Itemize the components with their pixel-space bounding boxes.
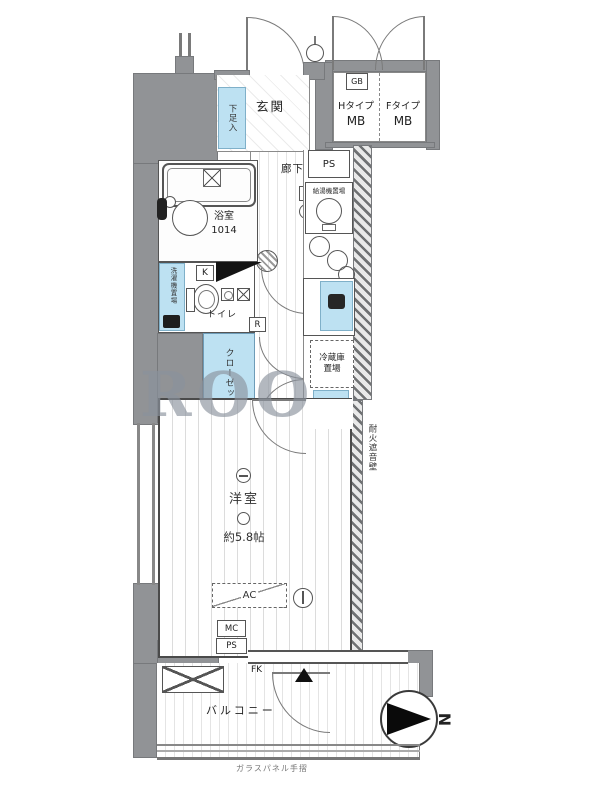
wall-hatched-right-upper bbox=[353, 145, 372, 400]
bath-counter-icon bbox=[157, 198, 167, 220]
ps-top-box: PS bbox=[308, 150, 350, 178]
mb-right-label: MB bbox=[394, 113, 413, 130]
ps-bottom-box: PS bbox=[216, 638, 247, 654]
handrail-line bbox=[157, 750, 420, 752]
k-box: K bbox=[196, 265, 214, 281]
gb-box: GB bbox=[346, 73, 368, 90]
balcony-label: バルコニー bbox=[206, 702, 276, 718]
north-arrow-icon bbox=[387, 703, 431, 735]
mc-box: MC bbox=[217, 620, 246, 637]
washing-machine-icon bbox=[163, 315, 180, 328]
mb-left-type: Hタイプ bbox=[338, 100, 374, 113]
left-window-inner-line bbox=[152, 423, 155, 585]
stove-burner-icon bbox=[309, 236, 330, 257]
mb-wall-bottom bbox=[325, 142, 435, 148]
ps-top-label: PS bbox=[323, 159, 335, 170]
room-size-label: 約5.8帖 bbox=[214, 529, 274, 545]
ac-outlet-icon bbox=[293, 588, 313, 608]
wall-top-left-block bbox=[133, 73, 218, 165]
shoe-box: 下足入 bbox=[218, 87, 246, 149]
bath-label: 浴室 1014 bbox=[198, 210, 250, 237]
ac-box: AC bbox=[212, 583, 287, 608]
toilet-label: トイレ bbox=[207, 307, 237, 320]
handrail-line bbox=[157, 757, 420, 760]
laundry-space: 洗濯機置場 bbox=[159, 263, 185, 331]
window-marker-icon bbox=[295, 668, 313, 682]
counter-wedge bbox=[216, 262, 262, 282]
north-label: N bbox=[435, 713, 454, 726]
left-window-outer-line bbox=[137, 423, 140, 585]
interphone-icon bbox=[306, 44, 324, 62]
light-symbol-icon bbox=[237, 512, 250, 525]
mb-door-arc-right bbox=[375, 16, 425, 70]
mb-left-label: MB bbox=[347, 113, 366, 130]
wall-balcony-left bbox=[133, 663, 157, 758]
light-symbol-icon bbox=[236, 468, 251, 483]
handrail-label: ガラスパネル手摺 bbox=[236, 763, 308, 774]
firewall-label: 耐火遮音壁 bbox=[366, 424, 378, 472]
r-box: R bbox=[249, 317, 266, 332]
fridge-label-1: 冷蔵庫 bbox=[319, 353, 345, 364]
mb-right-type: Fタイプ bbox=[386, 100, 420, 113]
hallway-label: 廊下 bbox=[281, 161, 304, 176]
room-label-block: 洋室 約5.8帖 bbox=[214, 468, 274, 545]
ac-label: AC bbox=[241, 590, 259, 601]
water-heater-label: 給湯機置場 bbox=[313, 185, 346, 195]
bath-size: 1014 bbox=[198, 224, 250, 238]
entrance-label: 玄関 bbox=[256, 96, 285, 115]
mb-left-compartment: Hタイプ MB bbox=[333, 92, 379, 138]
washlet-control-icon bbox=[237, 288, 250, 301]
fk-label: FK bbox=[251, 665, 262, 675]
bath-name: 浴室 bbox=[198, 210, 250, 224]
wall-left-lower bbox=[133, 583, 159, 665]
bath-faucet-icon bbox=[203, 169, 221, 187]
fridge-label-2: 置場 bbox=[323, 364, 340, 375]
water-heater-icon bbox=[316, 198, 342, 224]
gb-label: GB bbox=[351, 77, 363, 86]
shoe-box-label: 下足入 bbox=[226, 104, 238, 133]
entrance-door-arc bbox=[247, 17, 305, 75]
room-label: 洋室 bbox=[214, 488, 274, 507]
handrail-line bbox=[157, 744, 420, 746]
r-label: R bbox=[255, 320, 261, 330]
water-heater-base-icon bbox=[322, 224, 336, 231]
balcony-window bbox=[248, 650, 408, 664]
mb-right-compartment: Fタイプ MB bbox=[380, 92, 426, 138]
floorplan-image: GB Hタイプ MB Fタイプ MB 下足入 玄関 廊下 C 浴室 1014 bbox=[0, 0, 600, 800]
washlet-control-icon bbox=[221, 288, 234, 301]
fridge-space: 冷蔵庫 置場 bbox=[310, 340, 354, 388]
mb-wall-right bbox=[426, 60, 440, 150]
mc-label: MC bbox=[225, 624, 238, 634]
vent-pipe-cap bbox=[175, 56, 194, 74]
sink-faucet-icon bbox=[328, 294, 345, 309]
kitchen-sink bbox=[320, 281, 353, 331]
ps-bottom-label: PS bbox=[226, 641, 237, 651]
watermark: ROO bbox=[140, 358, 315, 431]
k-label: K bbox=[202, 268, 208, 278]
laundry-label: 洗濯機置場 bbox=[168, 267, 178, 305]
evacuation-hatch-icon bbox=[162, 666, 224, 693]
toilet-tank-icon bbox=[186, 288, 195, 312]
